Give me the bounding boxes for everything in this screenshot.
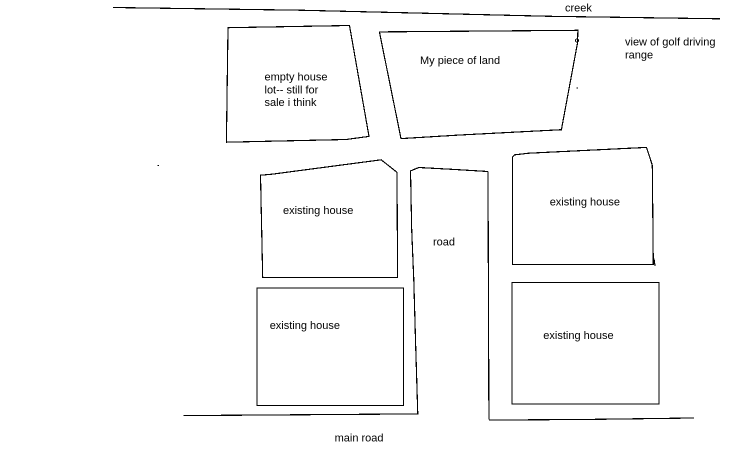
svg-text:My piece of land: My piece of land [420,55,500,67]
svg-text:sale i think: sale i think [265,97,317,109]
svg-text:creek: creek [565,3,592,15]
svg-text:existing house: existing house [283,205,353,217]
svg-text:existing house: existing house [270,320,340,332]
svg-text:empty house: empty house [265,72,328,84]
svg-text:existing house: existing house [550,197,620,209]
svg-text:main road: main road [335,432,384,444]
svg-text:range: range [625,50,653,62]
svg-text:lot-- still for: lot-- still for [265,84,319,96]
svg-text:road: road [433,237,455,249]
svg-text:existing house: existing house [543,330,613,342]
svg-text:view of golf driving: view of golf driving [625,37,716,49]
